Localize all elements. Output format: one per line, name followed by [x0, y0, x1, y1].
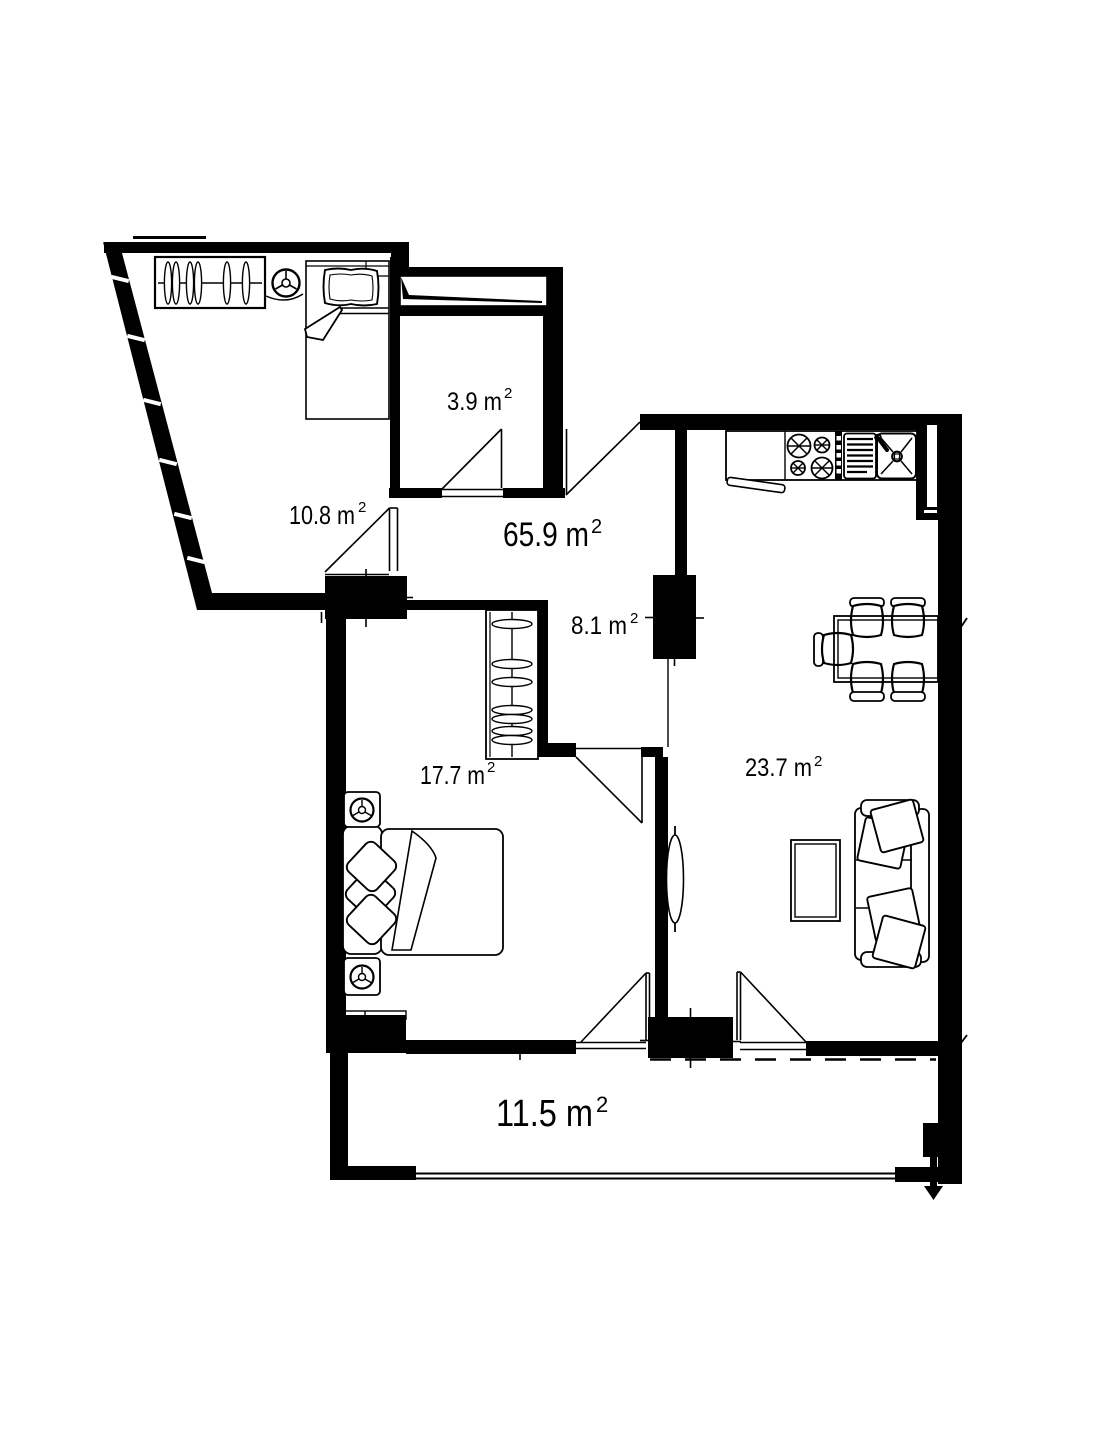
- svg-text:2: 2: [630, 610, 638, 627]
- svg-text:23.7 m: 23.7 m: [745, 754, 812, 782]
- svg-text:2: 2: [504, 385, 512, 402]
- svg-text:11.5 m: 11.5 m: [496, 1093, 593, 1135]
- svg-text:3.9 m: 3.9 m: [447, 388, 502, 416]
- svg-text:2: 2: [358, 499, 366, 516]
- svg-text:2: 2: [814, 753, 822, 770]
- svg-text:10.8 m: 10.8 m: [289, 500, 355, 530]
- svg-text:2: 2: [591, 516, 602, 538]
- svg-text:65.9 m: 65.9 m: [503, 516, 589, 554]
- svg-text:2: 2: [487, 759, 495, 776]
- svg-text:2: 2: [596, 1092, 608, 1117]
- svg-text:17.7 m: 17.7 m: [420, 760, 485, 790]
- svg-text:8.1 m: 8.1 m: [571, 612, 627, 640]
